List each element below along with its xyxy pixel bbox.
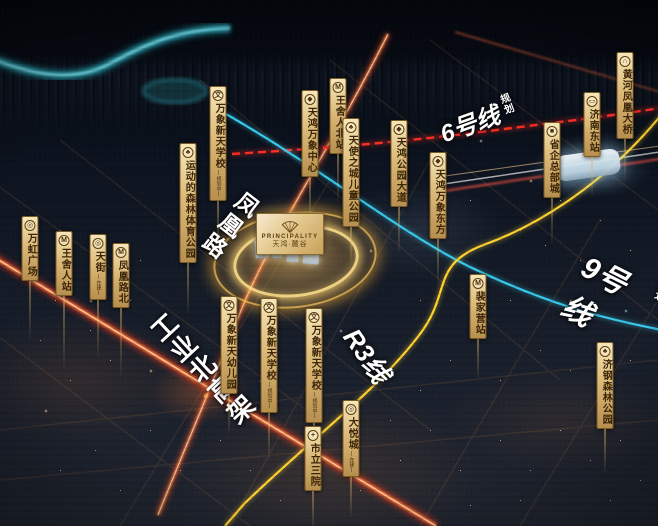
marker-sublabel: (在建) [349,451,354,473]
marker-label: 万象新天幼儿园 [224,313,235,390]
marker-tag: ♣ 运动的森林体育公园 [180,143,197,263]
marker-label: 黄河凤凰大桥 [620,69,631,135]
marker-tag: ◎ 万虹广场 [22,216,39,281]
marker-stem [478,339,479,379]
map-marker: 文 万象新天学校 (规划中) [261,298,278,459]
school-icon: 文 [264,302,275,313]
marker-tag: 文 万象新天学校 (规划中) [306,308,323,423]
marker-stem [438,239,439,285]
hq-icon: ■ [547,126,558,137]
park-icon: ♣ [600,346,611,357]
marker-stem [338,154,339,202]
marker-tag: M 凤凰路北 [113,243,130,308]
park-icon: ♣ [346,122,357,133]
marker-label: 万象新天学校 [264,315,275,381]
map-marker: ♣ 天使之城儿童公园 [343,118,360,263]
marker-tag: ∩ 黄河凤凰大桥 [617,52,634,139]
marker-sublabel: (在建) [96,274,101,296]
project-name-cn: 天鸿·麓谷 [272,241,307,248]
marker-stem [552,198,553,244]
marker-stem [218,201,219,249]
map-marker: M 裴家营站 [470,274,487,379]
map-marker: ◆ 天鸿万象中心 [302,90,319,227]
map-marker: ◎ 大悦城 (在建) [343,400,360,517]
marker-label: 市立三院 [308,443,319,487]
marker-tag: ◆ 天鸿公园大道 [391,120,408,207]
map-marker: ◆ 天鸿公园大道 [391,120,408,253]
fan-icon [278,220,302,233]
school-icon: 文 [309,312,320,323]
marker-tag: ◎ 天街 (在建) [90,234,107,300]
map-marker: ◎ 天街 (在建) [90,234,107,358]
hospital-icon: + [308,430,319,441]
mall-icon: ◎ [346,404,357,415]
marker-tag: 文 万象新天学校 (规划中) [261,298,278,413]
marker-tag: ♣ 济钢森林公园 [597,342,614,429]
marker-tag: ◎ 大悦城 (在建) [343,400,360,477]
map-marker: ◆ 天鸿万象东方 [430,152,447,285]
marker-sublabel: (规划中) [216,170,221,197]
marker-label: 万象新天学校 [213,103,224,169]
project-name-en: PRINCIPALITY [262,234,319,240]
marker-stem [121,308,122,376]
school-icon: 文 [213,90,224,101]
map-marker: 文 万象新天幼儿园 [221,296,238,434]
project-plaque: PRINCIPALITY 天鸿·麓谷 [256,213,324,255]
landmark-icon: ◆ [305,94,316,105]
marker-label: 济钢森林公园 [600,359,611,425]
marker-tag: 文 万象新天幼儿园 [221,296,238,394]
marker-label: 裴家营站 [473,291,484,335]
location-map-poster: PRINCIPALITY 天鸿·麓谷 凤凰路 工业北高架 6号线 规划 9号线 … [0,0,658,526]
marker-stem [229,394,230,434]
marker-label: 天街 [93,251,104,273]
marker-label: 凤凰路北 [116,260,127,304]
marker-label: 天鸿公园大道 [394,137,405,203]
map-marker: ♣ 济钢森林公园 [597,342,614,473]
map-marker: M 凤凰路北 [113,243,130,376]
marker-stem [269,413,270,459]
map-marker: ◎ 万虹广场 [22,216,39,339]
marker-label: 万象新天学校 [309,325,320,391]
marker-stem [399,207,400,253]
marker-label: 万虹广场 [25,233,36,277]
metro-icon: M [333,82,344,93]
marker-stem [98,300,99,358]
plaza-icon: ◎ [25,220,36,231]
marker-stem [188,263,189,313]
marker-label: 大悦城 [346,417,357,450]
map-marker: ▭ 济南东站 [584,92,601,197]
park-icon: ♣ [183,147,194,158]
marker-label: 运动的森林体育公园 [183,160,194,259]
map-marker: ■ 省企总部城 [544,122,561,244]
map-marker: + 市立三院 [305,426,322,526]
marker-stem [351,227,352,263]
metro-icon: M [473,278,484,289]
marker-tag: ◆ 天鸿万象中心 [302,90,319,177]
marker-label: 王舍人站 [59,248,70,292]
map-marker: ∩ 黄河凤凰大桥 [617,52,634,179]
marker-stem [592,157,593,197]
marker-label: 天鸿万象中心 [305,107,316,173]
marker-tag: + 市立三院 [305,426,322,491]
marker-sublabel: (规划中) [267,382,272,409]
marker-stem [605,429,606,473]
marker-tag: ♣ 天使之城儿童公园 [343,118,360,227]
marker-tag: ▭ 济南东站 [584,92,601,157]
marker-stem [64,296,65,368]
marker-sublabel: (规划中) [312,392,317,419]
marker-tag: M 王舍人站 [56,231,73,296]
map-marker: M 王舍人站 [56,231,73,368]
map-marker: ♣ 运动的森林体育公园 [180,143,197,313]
marker-stem [30,281,31,339]
marker-tag: M 裴家营站 [470,274,487,339]
metro-icon: M [116,247,127,258]
metro-icon: M [59,235,70,246]
school-icon: 文 [224,300,235,311]
marker-tag: 文 万象新天学校 (规划中) [210,86,227,201]
bridge-icon: ∩ [620,56,631,67]
marker-label: 省企总部城 [547,139,558,194]
mall-icon: ◎ [93,238,104,249]
landmark-icon: ◆ [433,156,444,167]
marker-label: 天使之城儿童公园 [346,135,357,223]
marker-label: 济南东站 [587,109,598,153]
marker-stem [313,491,314,526]
train-icon: ▭ [587,96,598,107]
landmark-icon: ◆ [394,124,405,135]
marker-label: 天鸿万象东方 [433,169,444,235]
marker-tag: ■ 省企总部城 [544,122,561,198]
marker-stem [351,477,352,517]
marker-stem [625,139,626,179]
map-marker: 文 万象新天学校 (规划中) [210,86,227,249]
marker-tag: ◆ 天鸿万象东方 [430,152,447,239]
